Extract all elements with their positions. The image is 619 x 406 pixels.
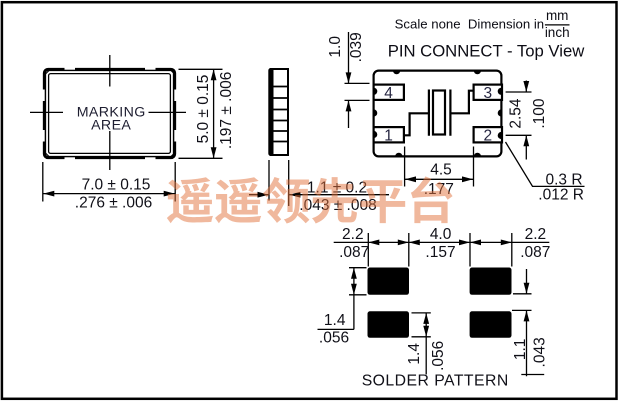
svg-text:7.0 ± 0.15: 7.0 ± 0.15	[82, 177, 151, 194]
svg-text:.100: .100	[531, 98, 548, 129]
svg-text:5.0 ± 0.15: 5.0 ± 0.15	[195, 75, 212, 144]
svg-text:4: 4	[384, 85, 393, 102]
svg-text:1.0: 1.0	[327, 36, 344, 58]
svg-text:.197 ± .006: .197 ± .006	[218, 72, 235, 149]
svg-text:1.1: 1.1	[512, 339, 529, 361]
svg-text:2: 2	[483, 128, 492, 145]
svg-text:1: 1	[384, 128, 393, 145]
svg-text:3: 3	[483, 85, 492, 102]
svg-text:4.0: 4.0	[430, 226, 452, 243]
svg-text:.276 ± .006: .276 ± .006	[75, 194, 152, 211]
svg-text:2.2: 2.2	[342, 226, 364, 243]
svg-text:inch: inch	[545, 25, 570, 40]
svg-text:PIN CONNECT - Top View: PIN CONNECT - Top View	[388, 42, 586, 61]
svg-text:Scale none Dimension in: Scale none Dimension in	[395, 17, 545, 32]
svg-text:.012 R: .012 R	[538, 186, 584, 203]
svg-text:.056: .056	[430, 341, 447, 371]
svg-text:.087: .087	[520, 244, 550, 261]
svg-text:4.5: 4.5	[430, 162, 452, 179]
svg-text:2.54: 2.54	[508, 98, 525, 129]
svg-text:.157: .157	[425, 244, 455, 261]
svg-text:mm: mm	[546, 8, 569, 23]
svg-text:AREA: AREA	[91, 117, 131, 133]
svg-text:.039: .039	[348, 32, 365, 62]
svg-text:.043: .043	[532, 337, 549, 367]
svg-text:.056: .056	[319, 329, 349, 346]
svg-text:SOLDER PATTERN: SOLDER PATTERN	[362, 373, 509, 390]
svg-text:1.4: 1.4	[406, 343, 423, 365]
svg-text:.087: .087	[339, 244, 369, 261]
svg-text:2.2: 2.2	[525, 226, 547, 243]
svg-text:1.4: 1.4	[324, 312, 346, 329]
